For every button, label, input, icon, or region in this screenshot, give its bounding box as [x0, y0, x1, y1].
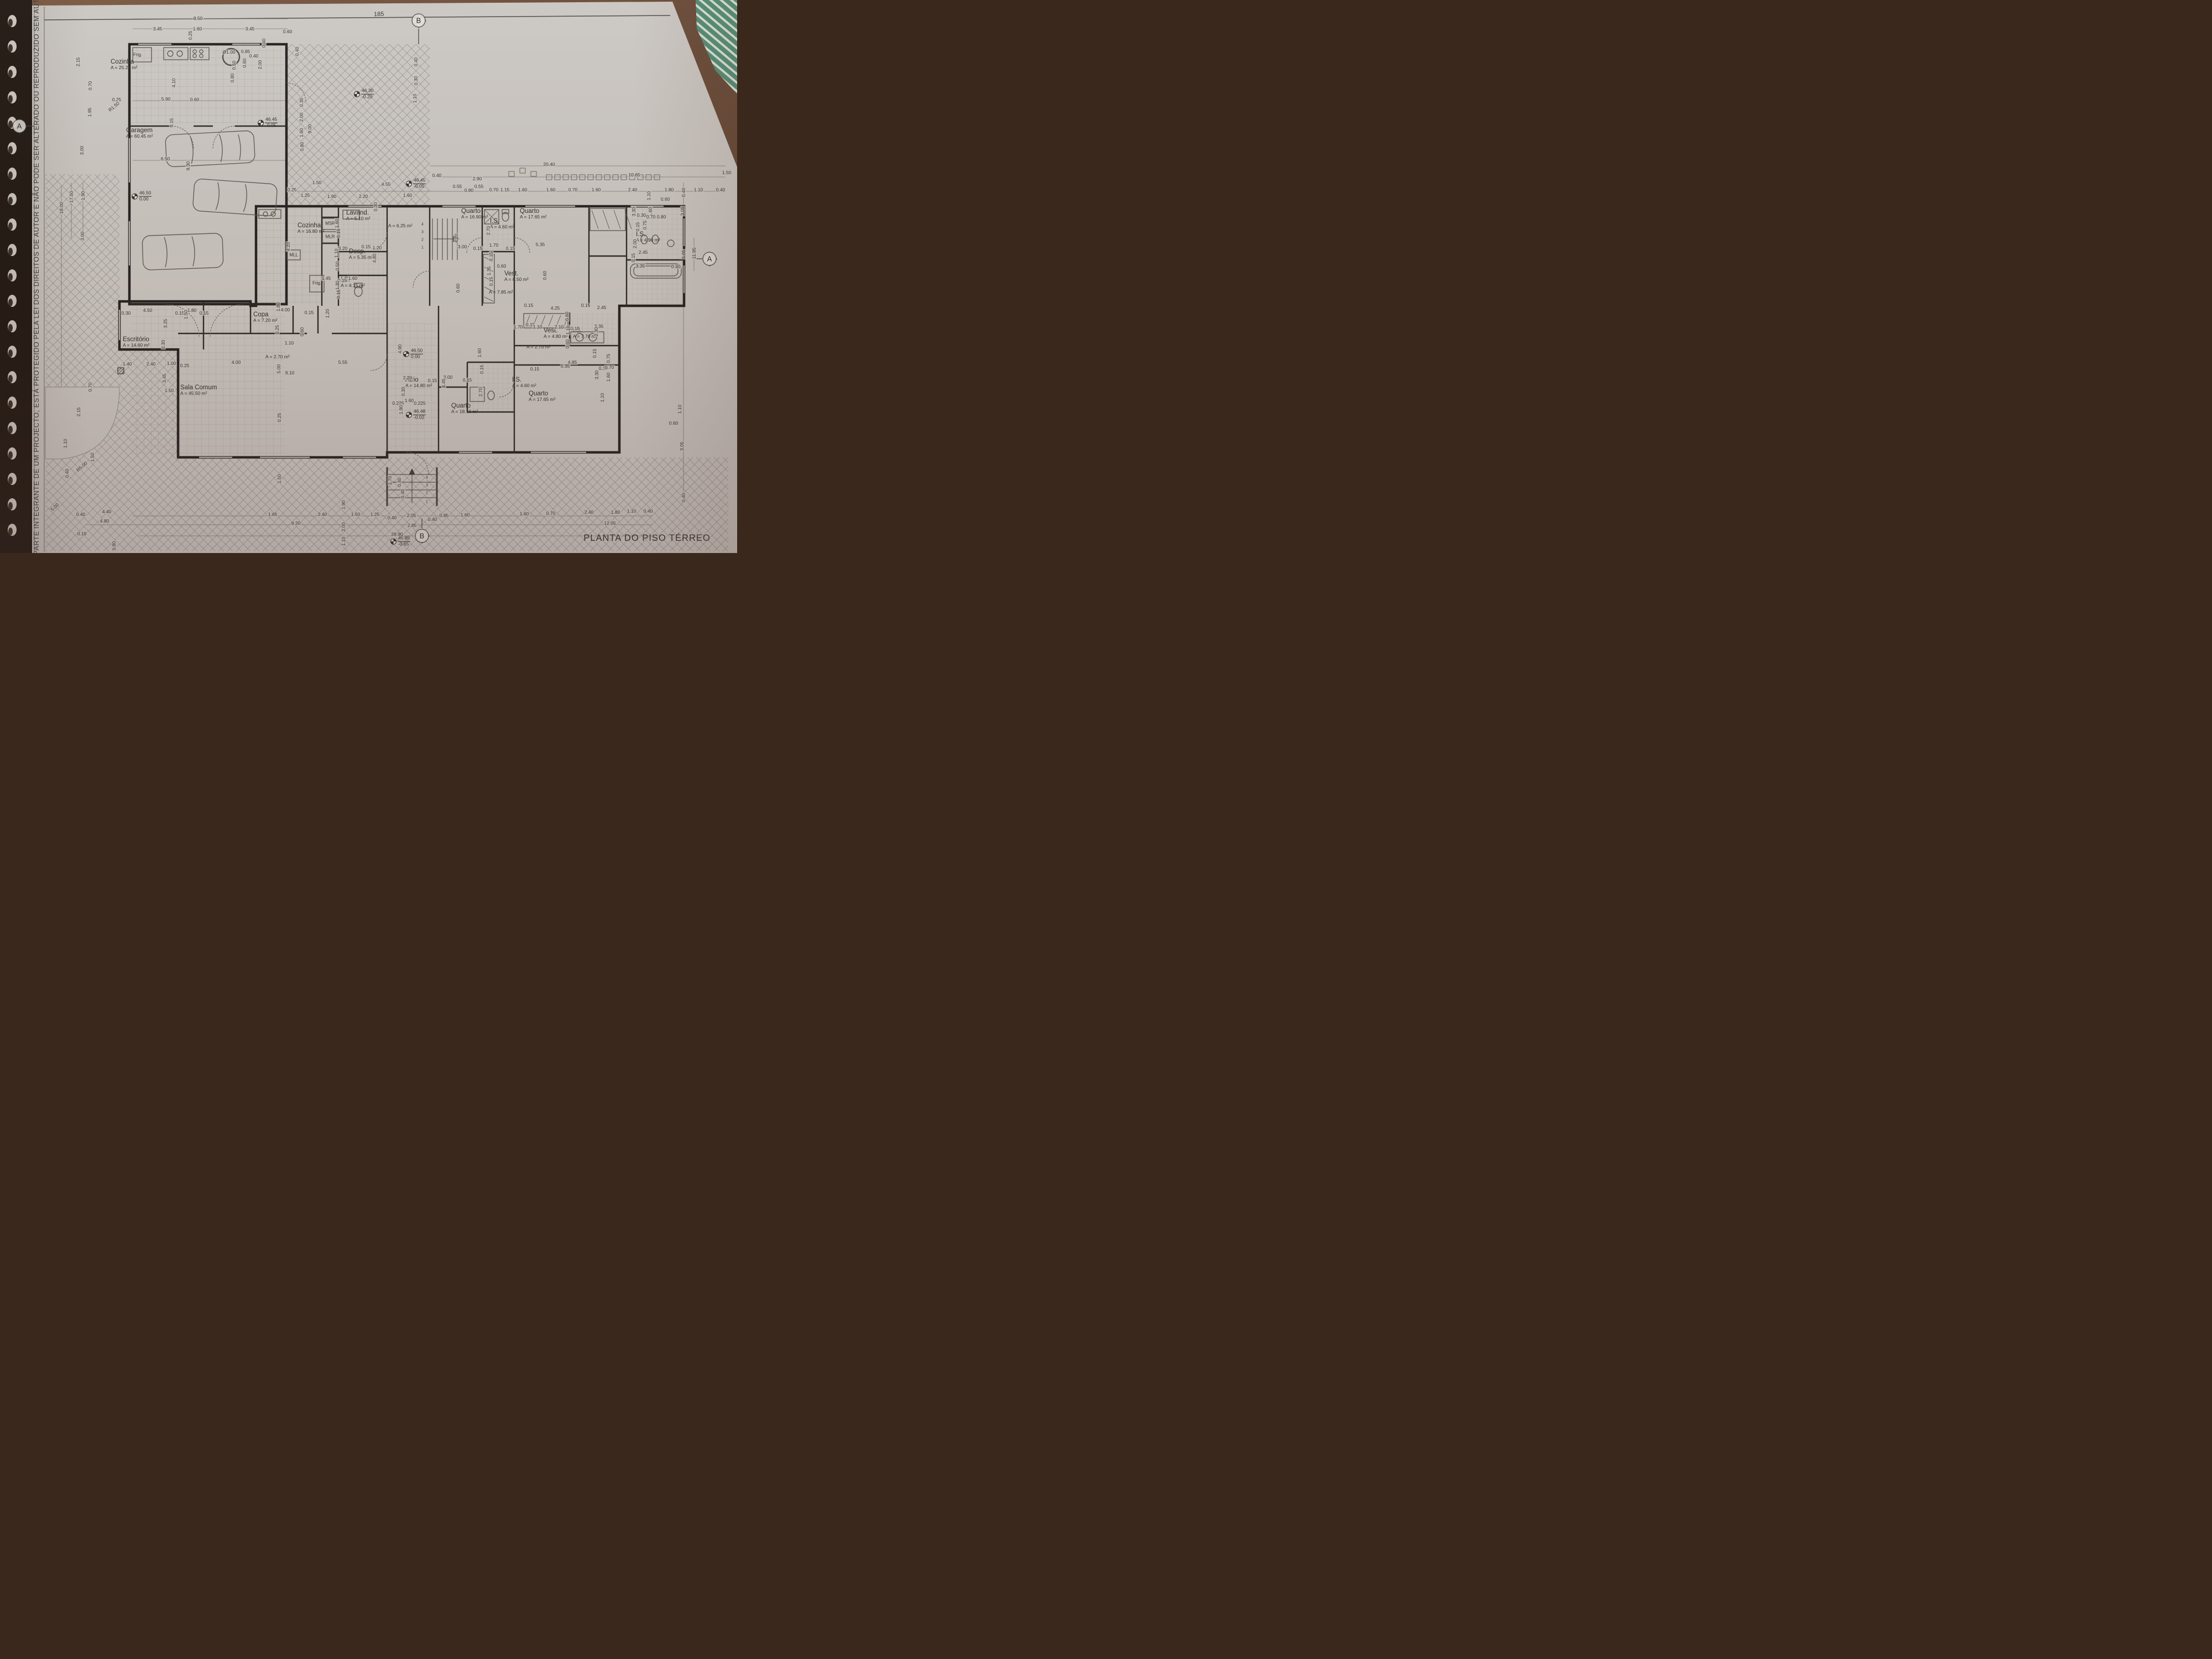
plan-drawing	[0, 0, 737, 553]
floor-plan-photo: Cozinha A = 25.20 m² Garagem A = 60.45 m…	[0, 0, 737, 553]
spiral-binding	[0, 0, 32, 553]
